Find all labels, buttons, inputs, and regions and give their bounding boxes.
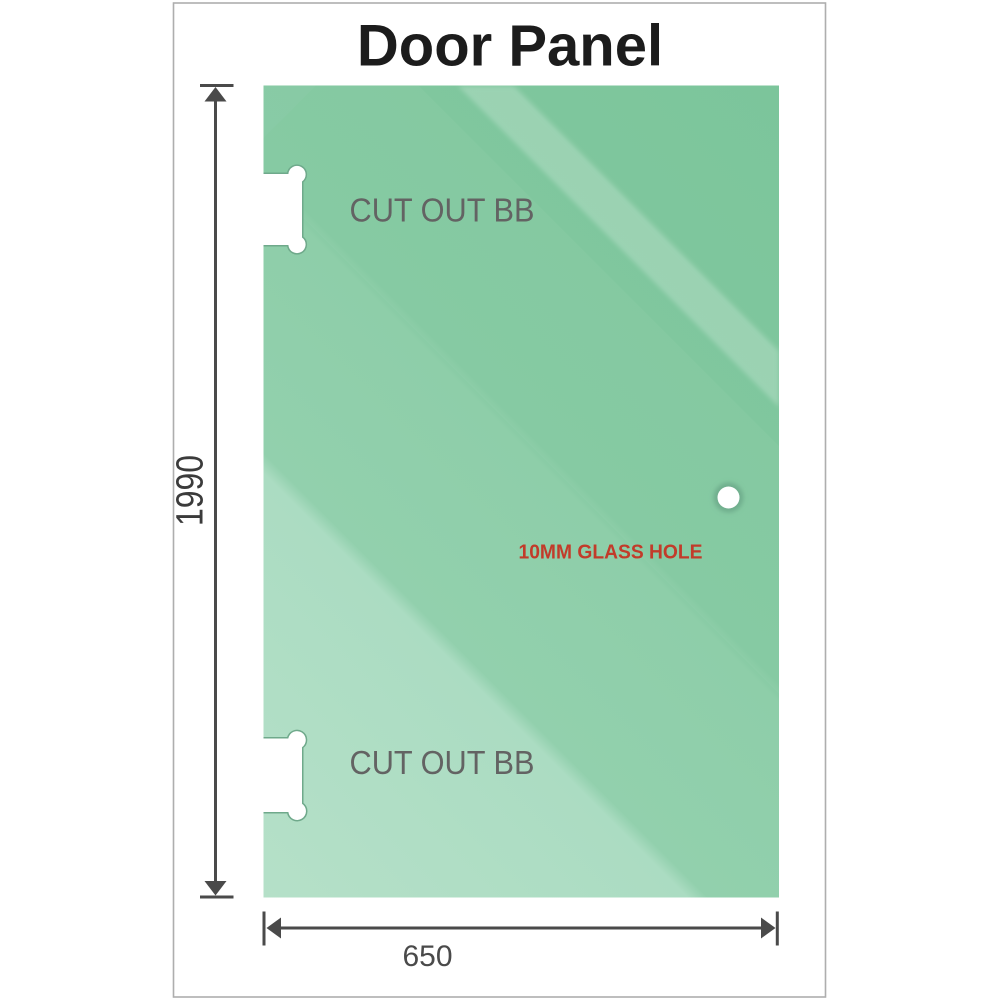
svg-text:CUT OUT BB: CUT OUT BB (350, 192, 535, 229)
svg-text:CUT OUT BB: CUT OUT BB (350, 744, 535, 781)
svg-text:1990: 1990 (170, 455, 212, 526)
svg-text:Door Panel: Door Panel (357, 14, 663, 79)
svg-text:10MM GLASS HOLE: 10MM GLASS HOLE (519, 542, 703, 564)
svg-text:650: 650 (402, 940, 452, 973)
